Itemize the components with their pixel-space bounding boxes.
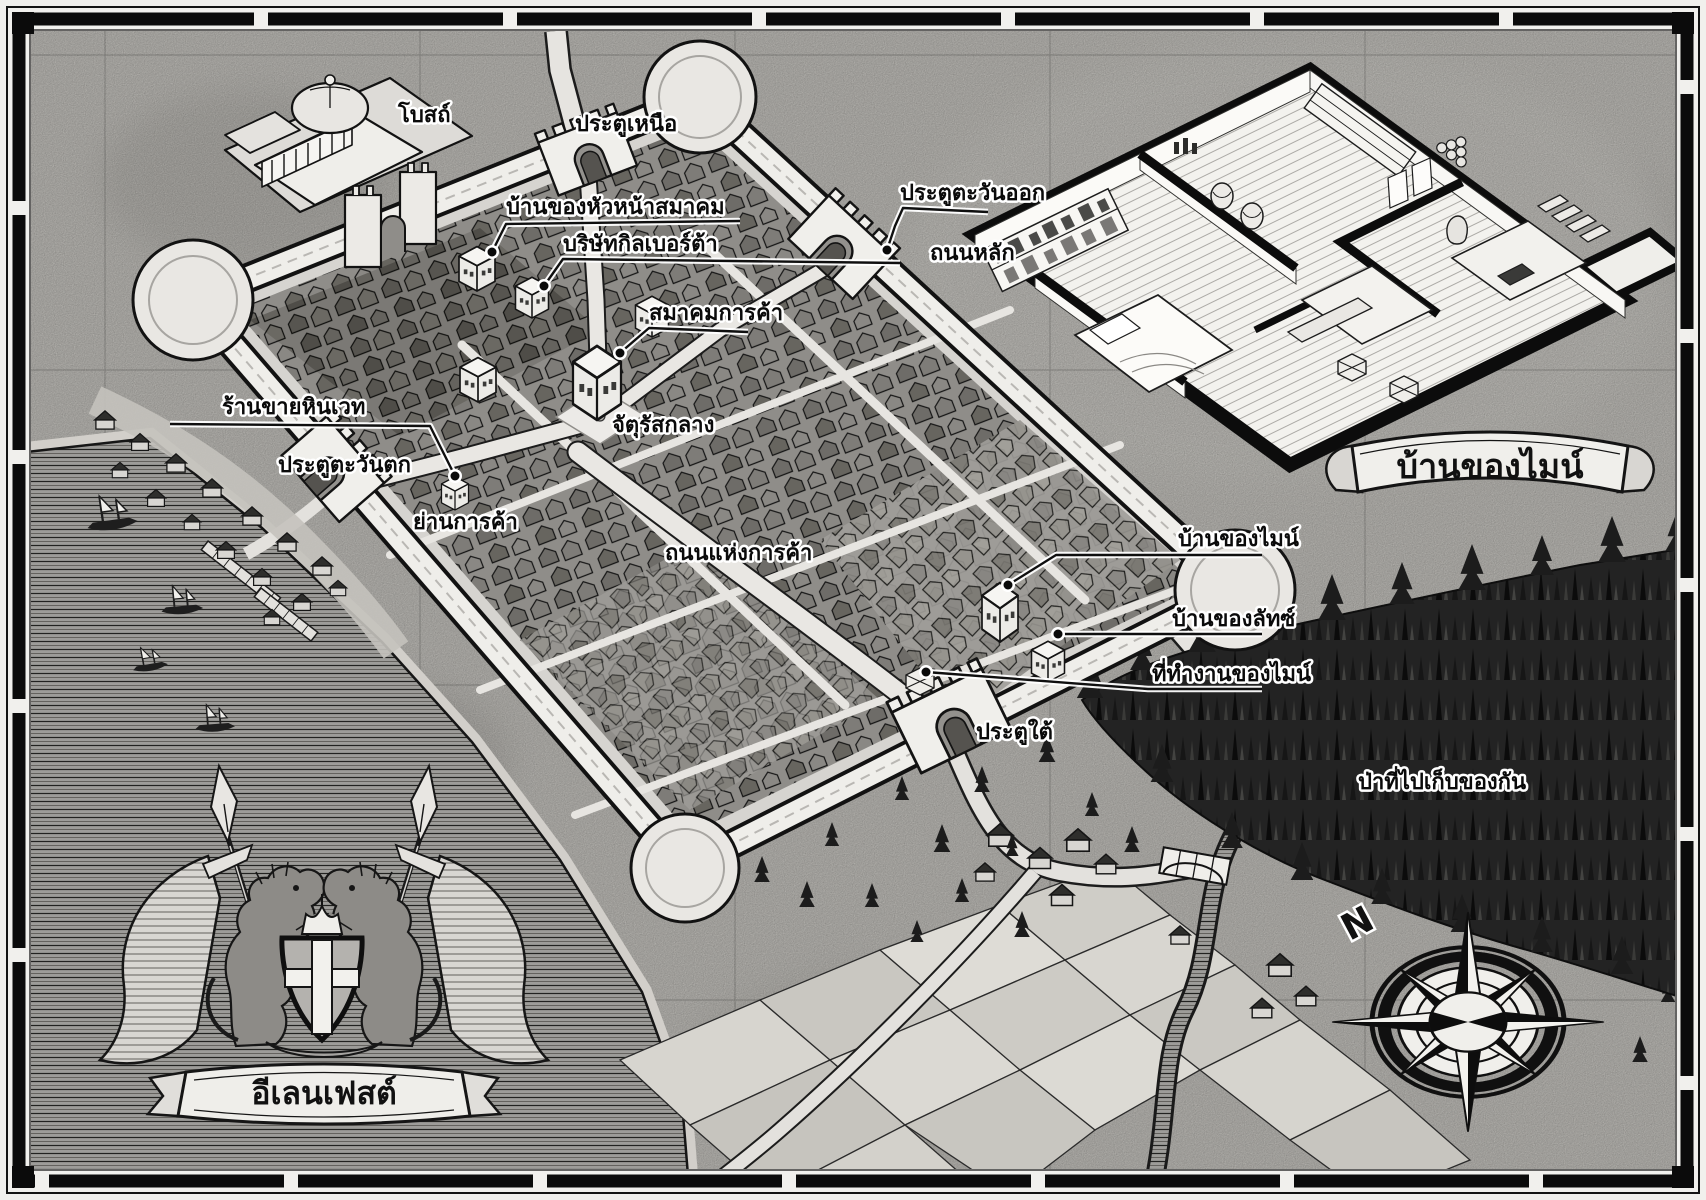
svg-text:ประตูตะวันตก: ประตูตะวันตก (278, 453, 411, 479)
inset-title-banner: บ้านของไมน์ (1326, 432, 1653, 492)
svg-text:บริษัทกิลเบอร์ต้า: บริษัทกิลเบอร์ต้า (563, 231, 718, 257)
svg-text:บ้านของหัวหน้าสมาคม: บ้านของหัวหน้าสมาคม (506, 195, 725, 220)
city-name-banner: อีเลนเฟสต์ (148, 1064, 500, 1124)
svg-text:โบสถ์: โบสถ์ (397, 101, 451, 128)
svg-text:บ้านของลัทซ์: บ้านของลัทซ์ (1172, 606, 1295, 632)
svg-text:ประตูใต้: ประตูใต้ (976, 718, 1053, 746)
inset-title-text: บ้านของไมน์ (1397, 446, 1584, 487)
svg-text:ป่าที่ไปเก็บของกัน: ป่าที่ไปเก็บของกัน (1358, 765, 1526, 795)
svg-text:ถนนหลัก: ถนนหลัก (930, 241, 1015, 266)
svg-text:ย่านการค้า: ย่านการค้า (413, 510, 518, 535)
svg-text:ประตูตะวันออก: ประตูตะวันออก (900, 181, 1045, 207)
label-main-road: ถนนหลัก (930, 241, 1015, 266)
svg-text:บ้านของไมน์: บ้านของไมน์ (1178, 525, 1299, 552)
water-jug (1447, 216, 1467, 244)
svg-text:ร้านขายหินเวท: ร้านขายหินเวท (222, 395, 365, 420)
label-gathering-forest: ป่าที่ไปเก็บของกัน (1358, 765, 1526, 795)
ehrenfest-city-map: N อีเลนเฟสต์ (0, 0, 1706, 1200)
svg-text:ถนนแห่งการค้า: ถนนแห่งการค้า (665, 541, 812, 566)
label-west-gate: ประตูตะวันตก (278, 453, 411, 479)
city-name-text: อีเลนเฟสต์ (251, 1074, 397, 1112)
square-building-west (460, 358, 496, 402)
svg-text:จัตุรัสกลาง: จัตุรัสกลาง (612, 413, 714, 439)
merchant-guild-building (573, 346, 621, 420)
map-canvas: N อีเลนเฟสต์ (0, 0, 1706, 1200)
label-commercial-district: ย่านการค้า (413, 510, 518, 535)
label-south-gate: ประตูใต้ (976, 718, 1053, 746)
label-commerce-street: ถนนแห่งการค้า (665, 541, 812, 566)
svg-text:ประตูเหนือ: ประตูเหนือ (575, 112, 677, 138)
lutz-house-building (1032, 641, 1065, 682)
label-north-gate: ประตูเหนือ (575, 112, 677, 138)
svg-text:สมาคมการค้า: สมาคมการค้า (649, 301, 783, 326)
label-central-square: จัตุรัสกลาง (612, 413, 714, 439)
svg-text:ที่ทำงานของไมน์: ที่ทำงานของไมน์ (1152, 657, 1311, 687)
south-tower (631, 814, 739, 922)
label-church: โบสถ์ (397, 101, 451, 128)
northwest-tower (133, 240, 253, 360)
myne-house-building (982, 583, 1018, 642)
